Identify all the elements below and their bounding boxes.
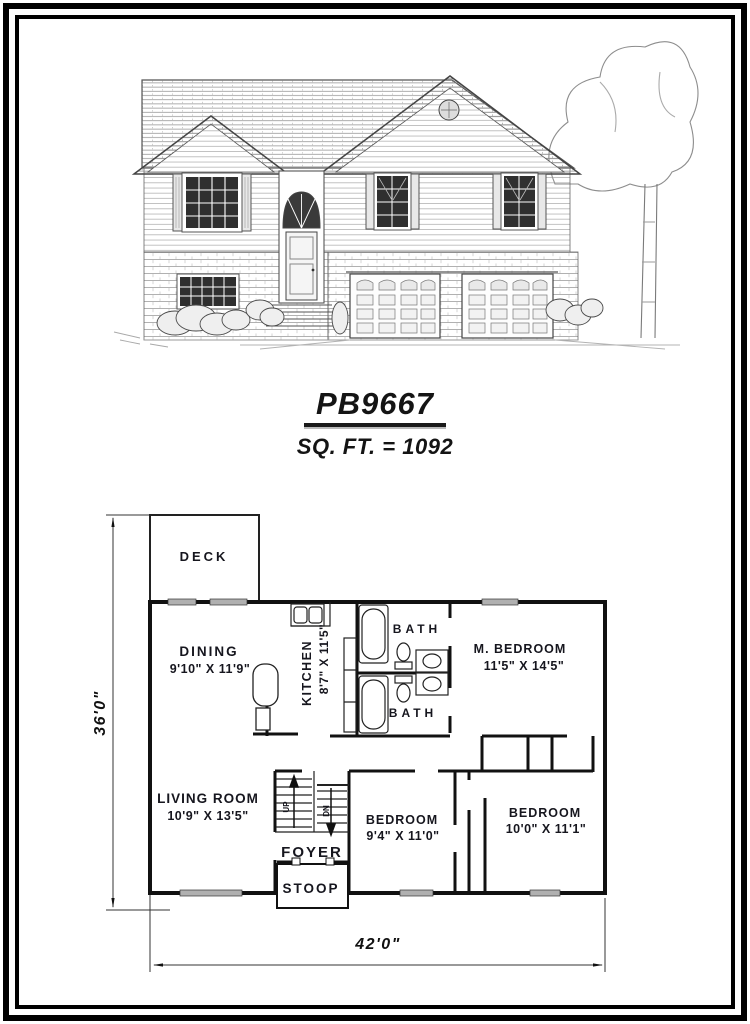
bedroom-right-label: BEDROOM [509,806,581,820]
floor-plan: 36'0" 42'0" [0,480,750,1024]
plan-sheet: PB9667 SQ. FT. = 1092 36'0" 42'0" [0,0,750,1024]
master-bedroom-dims: 11'5" X 14'5" [484,659,565,673]
right-window-1 [366,173,419,230]
garage-door-right [462,274,553,338]
bedroom-right-dims: 10'0" X 11'1" [506,822,587,836]
foyer-label: FOYER [281,844,343,861]
vanity-bottom [416,673,448,695]
bathtub-bottom [359,676,388,733]
plan-number: PB9667 [304,386,446,427]
dining-dims: 9'10" X 11'9" [170,662,251,676]
deck-label: DECK [180,549,229,564]
stair-up-label: UP [282,801,291,813]
bedroom-center-dims: 9'4" X 11'0" [366,829,439,843]
left-picture-window [173,173,251,232]
house-elevation-sketch [100,22,700,352]
overall-depth-label: 36'0" [92,690,109,736]
garage-door-left [350,274,440,338]
vanity-top [416,650,448,672]
basement-window [177,274,239,309]
bath-bottom-label: BATH [389,706,437,720]
refrigerator [253,664,278,730]
entry-door [279,171,324,303]
kitchen-sink [291,604,324,626]
master-bedroom-label: M. BEDROOM [474,642,567,656]
kitchen-dims: 8'7" X 11'5" [317,624,331,694]
living-room-label: LIVING ROOM [157,791,259,806]
title-block: PB9667 SQ. FT. = 1092 [0,386,750,460]
toilet-bottom [395,676,412,702]
overall-width-label: 42'0" [354,936,401,953]
stair-down-label: DN [322,805,331,817]
toilet-top [395,643,412,669]
square-footage: SQ. FT. = 1092 [0,434,750,460]
right-window-2 [493,173,546,230]
kitchen-label: KITCHEN [300,640,314,706]
living-room-dims: 10'9" X 13'5" [167,809,248,823]
bath-top-label: BATH [393,622,441,636]
bedroom-center-label: BEDROOM [366,813,438,827]
bathtub-top [359,605,388,663]
dining-label: DINING [179,644,238,659]
stoop-label: STOOP [282,881,339,896]
